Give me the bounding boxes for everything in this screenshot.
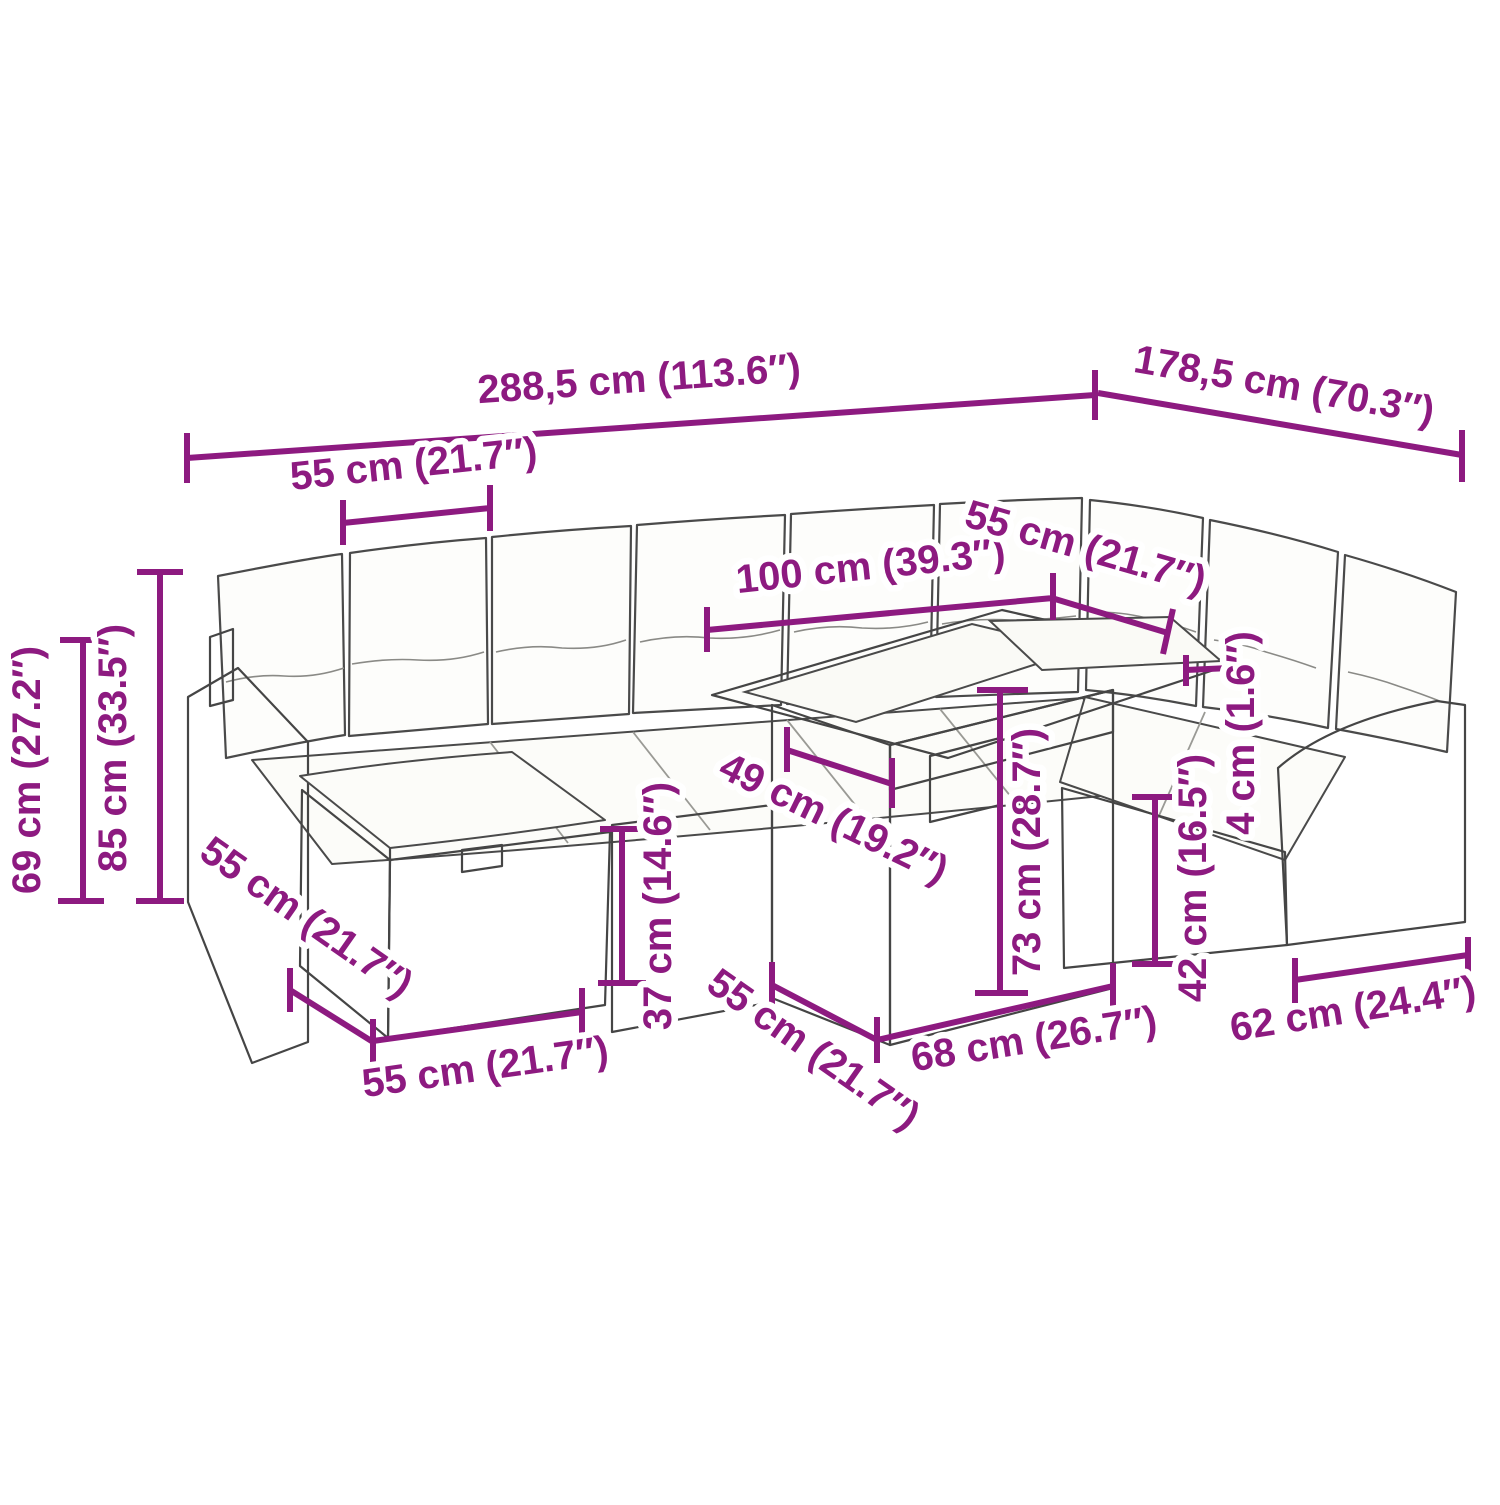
ottoman [300, 752, 610, 1038]
dim-table-width: 68 cm (26.7″) [877, 963, 1160, 1080]
dim-table-depth: 55 cm (21.7″) [699, 960, 928, 1138]
dim-armrest-height: 69 cm (27.2″) [5, 640, 104, 901]
dim-armrest-height-label: 69 cm (27.2″) [5, 646, 49, 894]
dim-backrest-height-label: 85 cm (33.5″) [91, 624, 135, 872]
dimension-diagram: 288,5 cm (113.6″) 178,5 cm (70.3″) 55 cm… [0, 0, 1500, 1500]
dim-overall-depth-label: 178,5 cm (70.3″) [1131, 337, 1438, 433]
dim-backrest-height: 85 cm (33.5″) [91, 572, 184, 901]
dim-table-depth-label: 55 cm (21.7″) [699, 960, 928, 1138]
dim-table-width-label: 68 cm (26.7″) [908, 998, 1160, 1080]
dim-seat-height-label: 37 cm (14.6″) [636, 782, 680, 1030]
dim-overall-depth: 178,5 cm (70.3″) [1098, 337, 1462, 482]
dim-armrest-width: 62 cm (24.4″) [1227, 937, 1479, 1050]
dim-ottoman-width: 55 cm (21.7″) [359, 988, 611, 1106]
dim-table-height-label: 73 cm (28.7″) [1005, 728, 1049, 976]
dim-armrest-width-label: 62 cm (24.4″) [1227, 968, 1479, 1050]
dim-ottoman-depth: 55 cm (21.7″) [192, 828, 421, 1064]
diagram-canvas: 288,5 cm (113.6″) 178,5 cm (70.3″) 55 cm… [0, 0, 1500, 1500]
dim-seat-base-height-label: 42 cm (16.5″) [1171, 754, 1215, 1002]
dim-overall-width-label: 288,5 cm (113.6″) [476, 346, 802, 412]
dim-cushion-thickness-label: 4 cm (1.6″) [1219, 631, 1263, 835]
